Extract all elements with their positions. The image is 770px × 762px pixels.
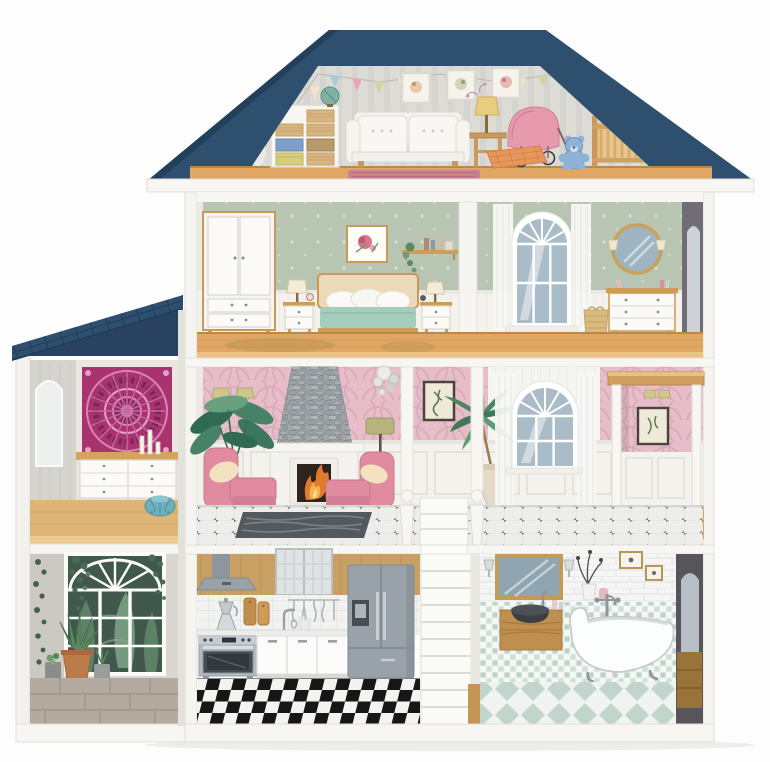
stone-floor bbox=[30, 678, 178, 726]
fridge bbox=[348, 565, 414, 678]
countertop bbox=[197, 630, 348, 636]
annex-base bbox=[16, 724, 185, 742]
cutting-boards bbox=[244, 598, 269, 625]
checkered-floor bbox=[197, 678, 420, 724]
annex-side-window bbox=[36, 381, 62, 466]
column-left bbox=[399, 367, 415, 545]
bed-blanket bbox=[320, 307, 416, 329]
second-floor bbox=[185, 192, 714, 367]
staircase bbox=[420, 554, 482, 724]
stairs-upper bbox=[420, 498, 468, 545]
annex-boudoir bbox=[30, 360, 185, 554]
white-sofa bbox=[346, 112, 470, 167]
lift-sconce-icon bbox=[644, 390, 656, 398]
column-right bbox=[469, 367, 485, 545]
ground-floor bbox=[185, 549, 714, 742]
bedroom-floor bbox=[197, 332, 703, 358]
white-sideboard bbox=[80, 460, 176, 498]
double-bed bbox=[318, 274, 418, 341]
annex bbox=[12, 295, 185, 742]
sconce-right-icon bbox=[656, 240, 666, 250]
left-outer-wall bbox=[185, 181, 197, 742]
second-slab bbox=[185, 358, 714, 367]
kitchen bbox=[197, 549, 420, 724]
framed-print bbox=[424, 382, 454, 420]
side-arch-icon bbox=[681, 573, 699, 652]
second-ceiling bbox=[197, 192, 703, 202]
living-floor bbox=[185, 366, 714, 554]
mantel-shelf bbox=[264, 443, 364, 452]
dresser bbox=[606, 280, 678, 339]
base-cabinets bbox=[257, 636, 348, 678]
base-slab bbox=[185, 724, 714, 742]
annex-junction bbox=[178, 310, 185, 726]
arched-window-bedroom bbox=[506, 212, 578, 332]
living-rug bbox=[235, 512, 372, 538]
wicker-basket bbox=[584, 307, 608, 336]
bathroom-side-wall bbox=[676, 554, 703, 724]
winter-garden bbox=[30, 554, 178, 726]
glass-cabinet bbox=[276, 549, 332, 595]
teal-pouf bbox=[145, 496, 175, 516]
dollhouse-product-image bbox=[0, 0, 770, 762]
attic-slab bbox=[147, 179, 754, 192]
lift-framed-print bbox=[638, 408, 668, 444]
dollhouse-illustration bbox=[0, 0, 770, 762]
sconce-left-icon bbox=[608, 240, 618, 250]
bathroom bbox=[480, 550, 703, 724]
bathroom-floor bbox=[480, 682, 703, 724]
stair-newel-wood bbox=[468, 684, 480, 724]
white-jug bbox=[582, 584, 596, 600]
attic-rug bbox=[348, 170, 480, 179]
bathroom-mirror bbox=[497, 556, 561, 598]
attic-picture-frames bbox=[402, 68, 520, 103]
boudoir-counter bbox=[76, 452, 178, 460]
range-oven bbox=[199, 636, 257, 679]
side-dresser bbox=[677, 652, 702, 708]
floral-picture bbox=[347, 226, 387, 262]
annex-outer-wall bbox=[16, 352, 30, 726]
wardrobe bbox=[203, 212, 275, 338]
right-outer-wall bbox=[703, 181, 714, 742]
